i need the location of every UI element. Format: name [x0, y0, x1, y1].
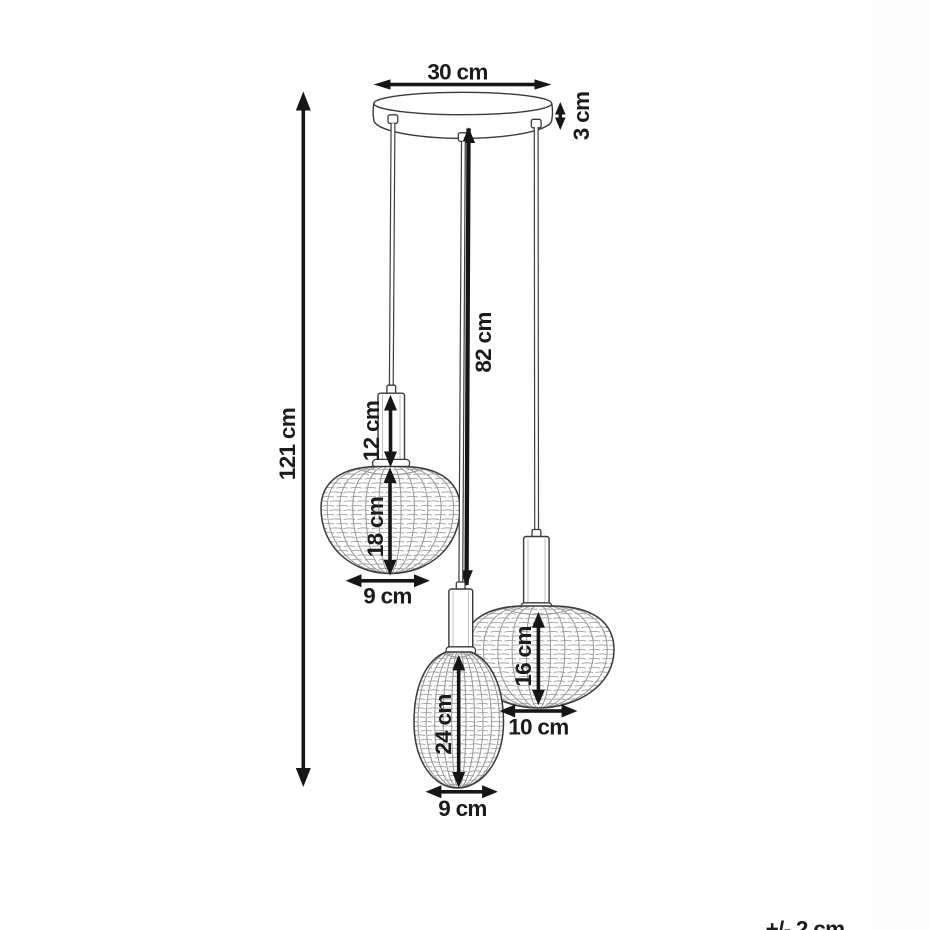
svg-text:9 cm: 9 cm — [438, 796, 486, 821]
svg-text:12 cm: 12 cm — [359, 401, 384, 461]
svg-text:30 cm: 30 cm — [427, 60, 487, 85]
svg-text:18 cm: 18 cm — [363, 497, 388, 557]
svg-text:+/- 2 cm: +/- 2 cm — [766, 917, 845, 930]
svg-text:16 cm: 16 cm — [511, 626, 536, 686]
svg-text:24 cm: 24 cm — [431, 694, 456, 754]
svg-text:82 cm: 82 cm — [471, 312, 496, 372]
svg-text:121 cm: 121 cm — [275, 408, 300, 480]
svg-text:9 cm: 9 cm — [363, 584, 411, 609]
svg-text:10 cm: 10 cm — [508, 715, 568, 740]
svg-text:3 cm: 3 cm — [569, 92, 594, 140]
